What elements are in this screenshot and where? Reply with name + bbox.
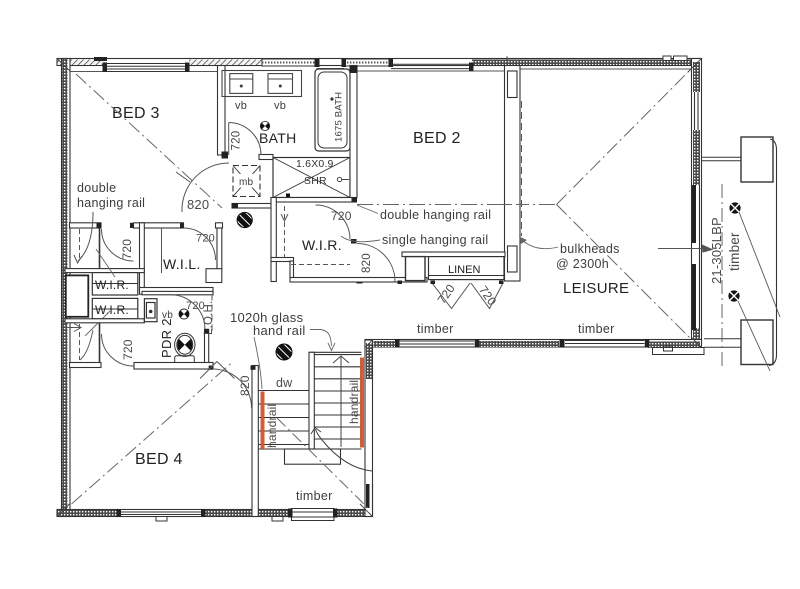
svg-text:720: 720 <box>331 209 352 223</box>
svg-text:820: 820 <box>187 197 209 212</box>
svg-text:vb: vb <box>274 100 286 112</box>
svg-text:BED 4: BED 4 <box>135 451 183 468</box>
svg-text:vb: vb <box>235 100 247 112</box>
svg-text:timber: timber <box>727 232 742 271</box>
svg-text:timber: timber <box>417 322 454 336</box>
svg-text:hand rail: hand rail <box>253 323 306 338</box>
svg-text:@ 2300h: @ 2300h <box>556 257 609 271</box>
svg-text:handrail: handrail <box>265 404 279 448</box>
svg-text:timber: timber <box>578 322 615 336</box>
svg-text:720: 720 <box>121 339 135 360</box>
svg-text:double: double <box>77 181 116 195</box>
svg-text:W.I.R.: W.I.R. <box>95 303 129 317</box>
svg-text:bulkheads: bulkheads <box>560 242 620 256</box>
svg-text:PDR 2: PDR 2 <box>159 318 174 358</box>
svg-text:820: 820 <box>238 375 252 396</box>
svg-text:BED 2: BED 2 <box>413 130 461 147</box>
svg-text:handrail: handrail <box>347 380 361 424</box>
svg-text:1.6X0.9: 1.6X0.9 <box>296 158 334 170</box>
svg-text:mb: mb <box>239 177 254 188</box>
svg-text:hanging rail: hanging rail <box>77 196 145 210</box>
svg-text:720: 720 <box>120 239 134 260</box>
svg-text:LEISURE: LEISURE <box>563 280 629 297</box>
svg-text:dw: dw <box>276 376 293 390</box>
svg-text:W.I.R.: W.I.R. <box>95 278 129 292</box>
svg-text:timber: timber <box>296 489 333 503</box>
svg-text:LINEN: LINEN <box>448 264 480 276</box>
svg-text:820: 820 <box>361 253 373 273</box>
svg-text:L.O.H.: L.O.H. <box>203 301 215 335</box>
svg-text:single hanging rail: single hanging rail <box>382 233 488 247</box>
svg-text:1675 BATH: 1675 BATH <box>334 92 345 142</box>
svg-text:SHR: SHR <box>304 175 327 187</box>
svg-text:21-305LBP: 21-305LBP <box>709 217 724 284</box>
svg-text:720: 720 <box>231 131 243 151</box>
svg-text:W.I.R.: W.I.R. <box>302 237 342 253</box>
svg-text:BATH: BATH <box>259 130 297 146</box>
svg-text:720: 720 <box>196 233 215 245</box>
svg-text:W.I.L.: W.I.L. <box>163 256 201 272</box>
svg-text:double hanging rail: double hanging rail <box>380 208 491 222</box>
